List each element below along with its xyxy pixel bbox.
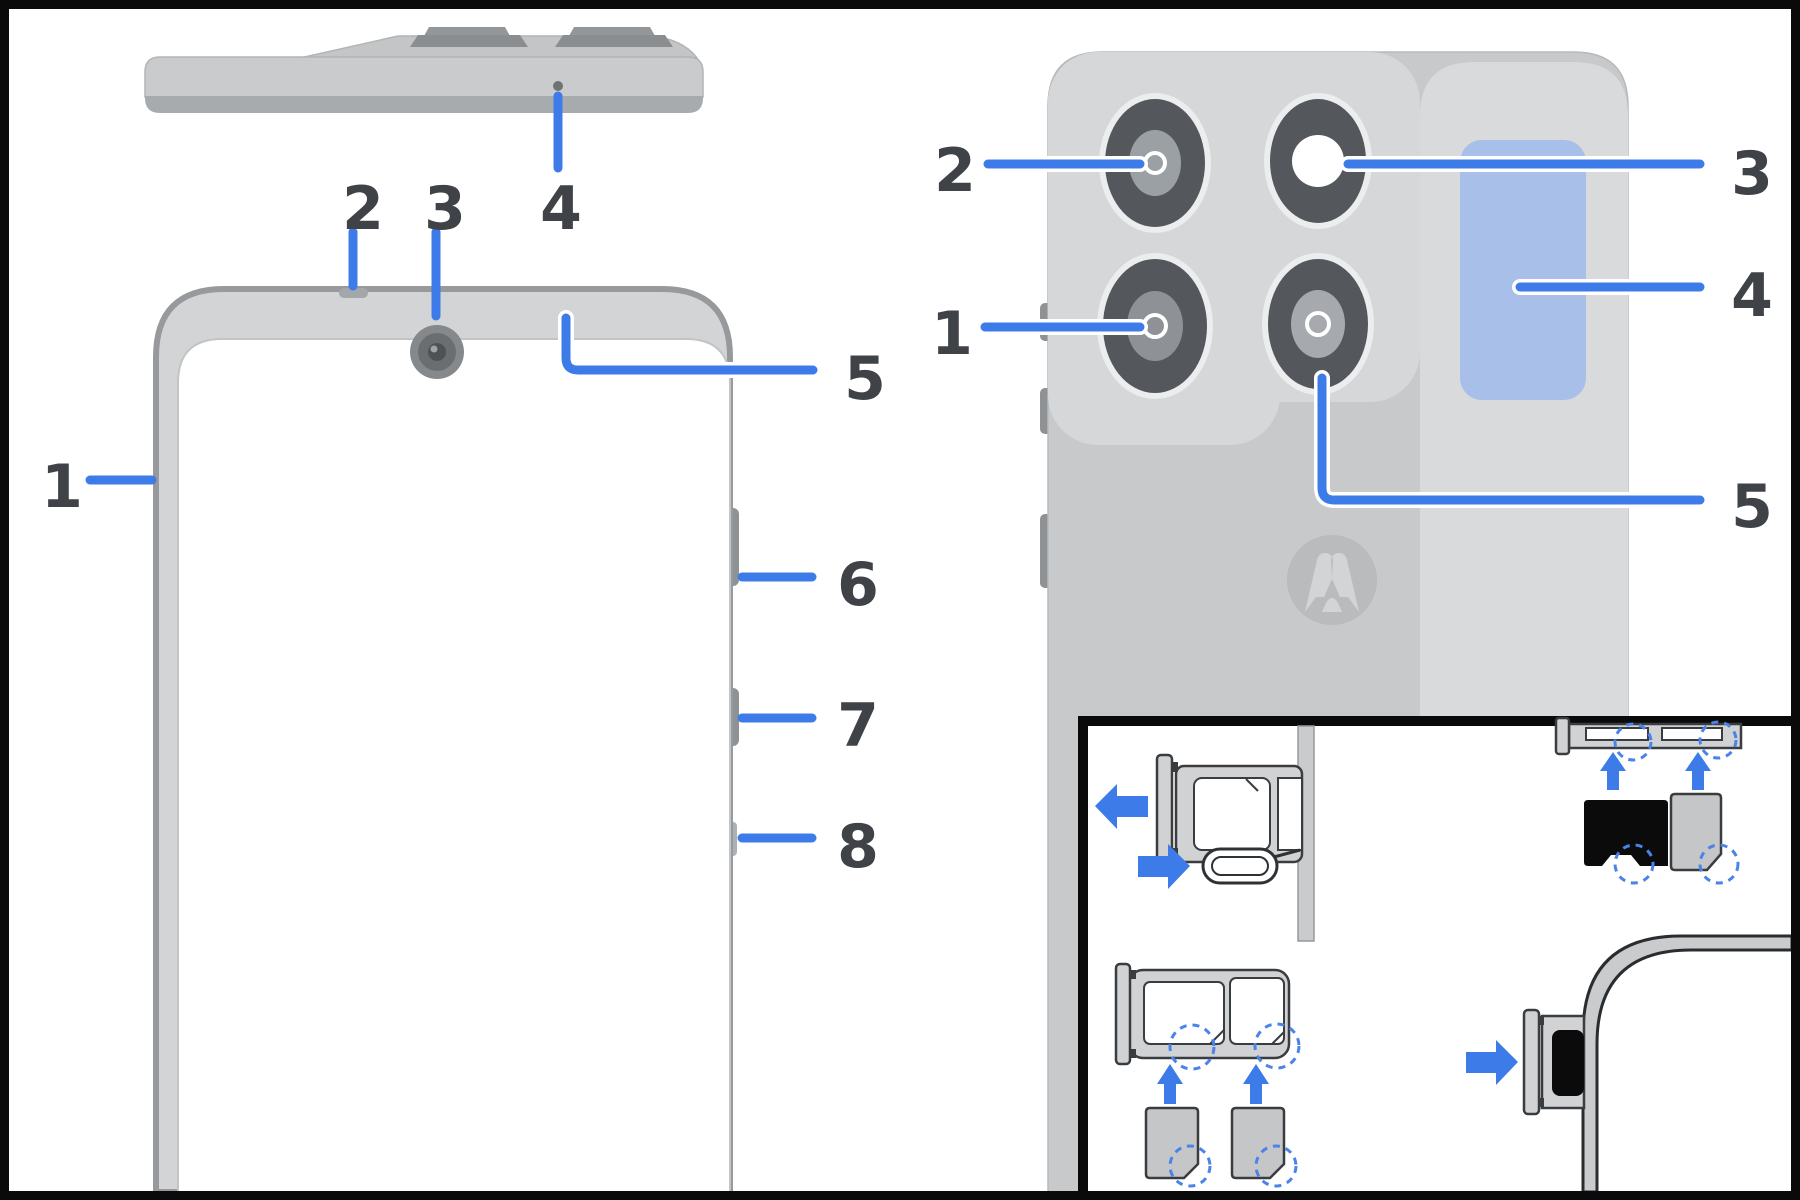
top-lens-bump-2-cap — [569, 27, 655, 36]
sim-ejector-tool-icon — [1203, 849, 1277, 883]
front-phone-view — [156, 288, 739, 1191]
back-callout-1: 1 — [931, 304, 971, 364]
front-callout-1: 1 — [41, 457, 81, 517]
top-lens-bump-1-cap — [424, 27, 510, 36]
tray-slot-2-sliver — [1278, 778, 1302, 850]
top-edge-face — [145, 57, 703, 97]
top-lens-bump-1 — [410, 35, 528, 47]
insert-tray-cap — [1524, 1010, 1539, 1114]
diagram-page: 1 2 3 4 5 6 7 8 1 2 3 4 5 — [0, 0, 1800, 1200]
mic-hole-icon — [553, 81, 563, 91]
top-lens-bump-2 — [555, 35, 673, 47]
insert-tray-flange-top — [1539, 1016, 1544, 1025]
dual-tray-slot-sim1 — [1144, 982, 1224, 1044]
motorola-logo-icon — [1287, 535, 1377, 625]
tray-flange-top — [1172, 762, 1178, 772]
back-callout-4: 4 — [1731, 266, 1771, 326]
dual-tray-cap — [1116, 964, 1130, 1064]
tray-slot-1 — [1194, 778, 1270, 850]
front-camera-icon — [410, 325, 464, 379]
front-callout-5: 5 — [844, 349, 884, 409]
diagram-graphics — [9, 9, 1791, 1191]
inset-border-left — [1078, 716, 1088, 1191]
front-callout-7: 7 — [837, 696, 877, 756]
inserted-card — [1552, 1030, 1584, 1096]
insert-tray-flange-bottom — [1539, 1098, 1544, 1107]
nano-sim-card-icon — [1671, 794, 1721, 870]
front-callout-3: 3 — [424, 179, 464, 239]
edge-tray-slot-1 — [1586, 728, 1648, 740]
front-callout-4: 4 — [540, 179, 580, 239]
front-callout-2: 2 — [342, 179, 382, 239]
back-callout-2: 2 — [934, 141, 974, 201]
blue-highlight-panel — [1460, 140, 1586, 400]
back-callout-5: 5 — [1731, 477, 1771, 537]
front-callout-8: 8 — [837, 817, 877, 877]
back-callout-3: 3 — [1731, 144, 1771, 204]
top-edge-bottom-band — [145, 96, 703, 113]
sim-inset-panel — [1078, 716, 1791, 1191]
front-callout-6: 6 — [837, 555, 877, 615]
top-edge-view — [145, 27, 703, 113]
edge-tray-cap — [1556, 718, 1569, 754]
edge-tray-slot-2 — [1662, 728, 1722, 740]
nano-sim-card-icon — [1232, 1108, 1284, 1178]
dual-tray-flange-top — [1130, 970, 1136, 979]
front-screen — [178, 339, 730, 1191]
dual-tray-flange-bottom — [1130, 1049, 1136, 1058]
nano-sim-card-icon — [1146, 1108, 1198, 1178]
